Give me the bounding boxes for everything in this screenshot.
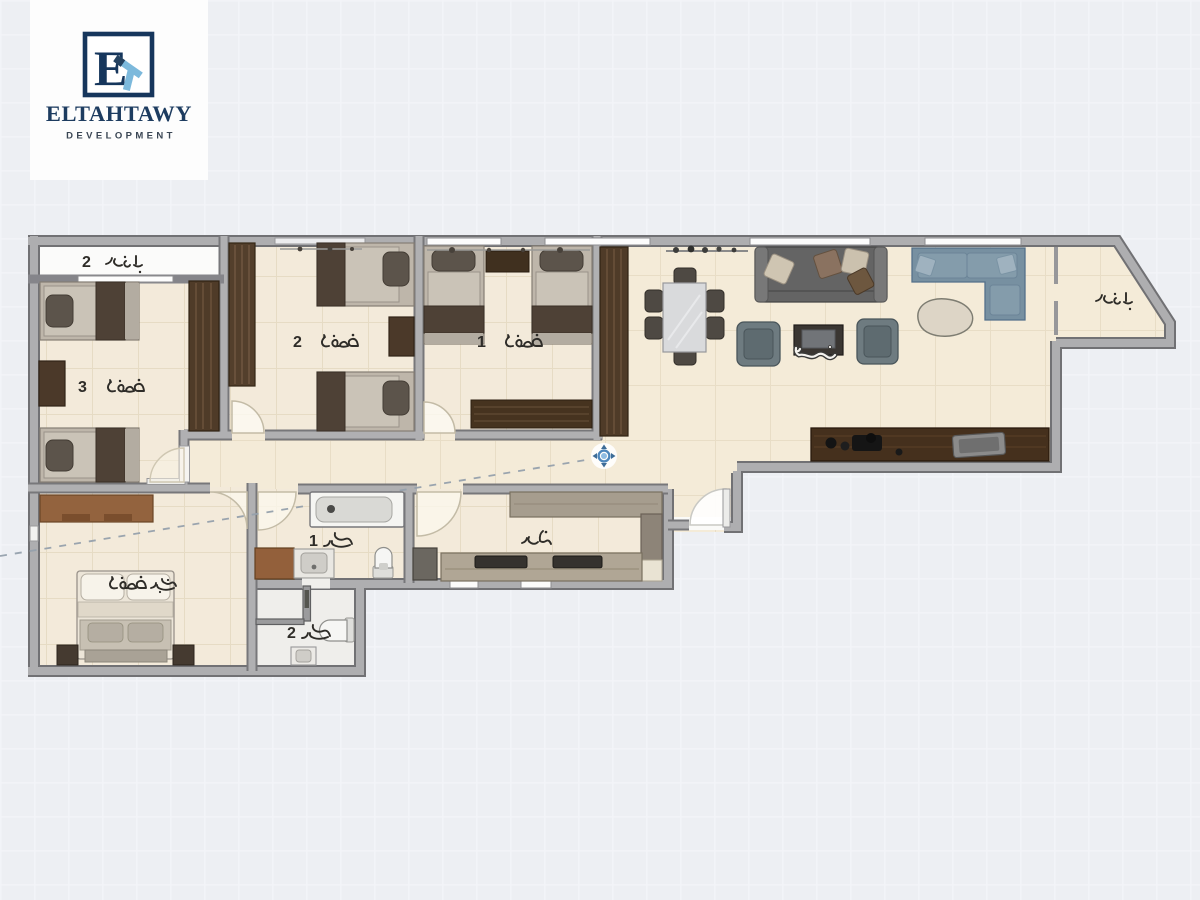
svg-text:2: 2 (82, 254, 91, 271)
svg-text:2: 2 (287, 625, 296, 642)
svg-text:DEVELOPMENT: DEVELOPMENT (66, 131, 176, 142)
svg-text:1: 1 (309, 533, 318, 550)
svg-text:1: 1 (477, 334, 486, 351)
svg-text:3: 3 (78, 379, 87, 396)
svg-text:2: 2 (293, 334, 302, 351)
svg-text:ELTAHTAWY: ELTAHTAWY (46, 101, 192, 126)
svg-text:E: E (94, 40, 127, 96)
